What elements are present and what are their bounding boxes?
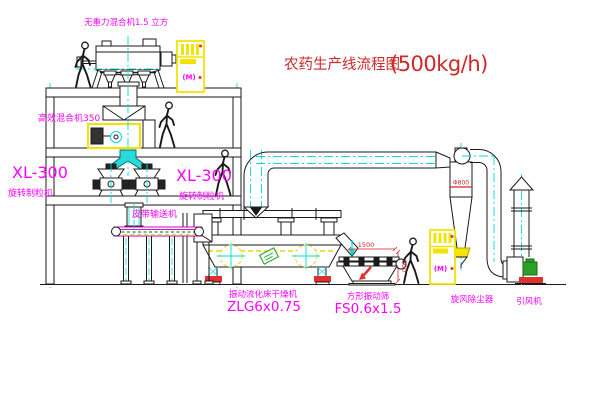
flow-diagram-canvas: (M) (M) 无重力混合机1.5 立方 高效混合机350 XL-300 旋转制… bbox=[0, 0, 600, 403]
label-cyclone: 旋风除尘器 bbox=[451, 294, 494, 305]
fluid-bed-dryer bbox=[203, 208, 341, 285]
dryer-top-nozzles bbox=[205, 218, 337, 235]
mixer-chute bbox=[118, 82, 139, 106]
high-efficiency-mixer bbox=[88, 106, 155, 148]
label-screen-model: FS0.6x1.5 bbox=[334, 301, 401, 317]
drawing-title: 农药生产线流程图 (500kg/h) bbox=[284, 52, 488, 76]
dryer-spring-mounts bbox=[205, 267, 331, 285]
building-roof-slab bbox=[46, 88, 241, 97]
title-capacity: (500kg/h) bbox=[390, 52, 488, 76]
label-belt-conveyor: 皮带输送机 bbox=[132, 208, 177, 220]
induced-draft-fan bbox=[507, 174, 546, 287]
label-granulator-right-name: 旋转制粒机 bbox=[179, 190, 224, 202]
building-mid-slab bbox=[46, 148, 241, 157]
cabinet-motor-symbol: (M) bbox=[434, 265, 447, 273]
dryer-inlet-hood bbox=[183, 213, 213, 284]
fan-motor bbox=[523, 259, 537, 275]
label-gravity-mixer: 无重力混合机1.5 立方 bbox=[84, 17, 168, 28]
label-granulator-left-name: 旋转制粒机 bbox=[8, 187, 53, 199]
control-cabinet-top: (M) bbox=[177, 41, 204, 92]
process-flow-drawing: (M) (M) 无重力混合机1.5 立方 高效混合机350 XL-300 旋转制… bbox=[0, 0, 600, 403]
vibrating-screen bbox=[337, 247, 406, 285]
label-fan: 引风机 bbox=[516, 296, 542, 307]
label-high-eff-mixer: 高效混合机350 bbox=[38, 112, 100, 124]
dim-screen-height: 500 bbox=[400, 260, 408, 272]
dim-cyclone-diameter: Φ800 bbox=[453, 180, 469, 187]
cabinet-motor-symbol: (M) bbox=[182, 74, 195, 82]
belt-conveyor bbox=[112, 227, 204, 284]
conveyor-legs bbox=[121, 236, 177, 284]
title-text: 农药生产线流程图 bbox=[284, 56, 400, 73]
worker-figure-mid-floor bbox=[160, 102, 175, 147]
exhaust-duct bbox=[244, 150, 438, 218]
label-dryer-model: ZLG6x0.75 bbox=[227, 299, 301, 315]
control-cabinet-right: (M) bbox=[430, 230, 455, 284]
dim-screen-length: 1500 bbox=[358, 241, 375, 249]
label-granulator-left-model: XL-300 bbox=[12, 163, 68, 182]
label-granulator-right-model: XL-300 bbox=[176, 166, 232, 185]
gravity-free-mixer bbox=[77, 39, 176, 88]
